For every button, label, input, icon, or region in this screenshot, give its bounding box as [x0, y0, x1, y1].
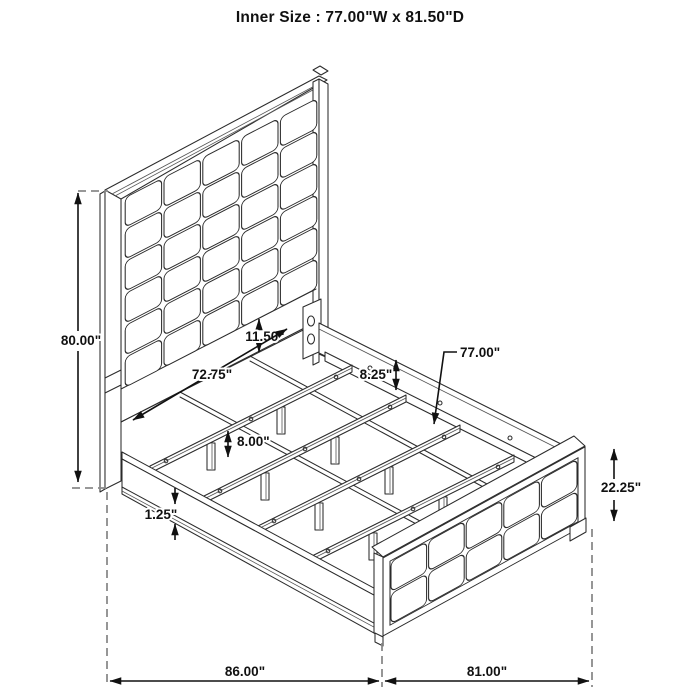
headboard-left-post	[105, 183, 121, 489]
dim-label-7275: 72.75"	[192, 367, 232, 382]
dimension-diagram: Inner Size : 77.00"W x 81.50"D	[0, 0, 700, 700]
headboard-bracket	[303, 299, 321, 359]
dim-label-80: 80.00"	[61, 333, 101, 348]
dim-label-800: 8.00"	[237, 434, 270, 449]
bed-line-drawing: 80.00" 11.50" 72.75" 8.25" 77.00" 8.00"	[0, 0, 700, 700]
dim-overall-depth: 86.00"	[110, 664, 379, 681]
dim-overall-width: 81.00"	[385, 664, 589, 681]
headboard	[100, 66, 328, 492]
dim-label-125: 1.25"	[145, 507, 178, 522]
dim-footboard-height: 22.25"	[601, 449, 641, 521]
dim-label-8600: 86.00"	[225, 664, 265, 679]
dim-label-2225: 22.25"	[601, 480, 641, 495]
dim-label-8100: 81.00"	[467, 664, 507, 679]
footboard-left-post	[374, 553, 383, 637]
dim-leg-height: 8.00"	[228, 431, 270, 457]
leg	[207, 443, 215, 470]
dim-label-7700: 77.00"	[460, 345, 500, 360]
leg	[261, 473, 269, 500]
leg	[385, 467, 393, 494]
dim-label-825: 8.25"	[360, 367, 393, 382]
leg	[331, 437, 339, 464]
footboard	[372, 436, 586, 646]
leg	[277, 407, 285, 434]
slat	[204, 395, 406, 503]
headboard-cap-tab	[313, 66, 328, 75]
leg	[315, 503, 323, 530]
